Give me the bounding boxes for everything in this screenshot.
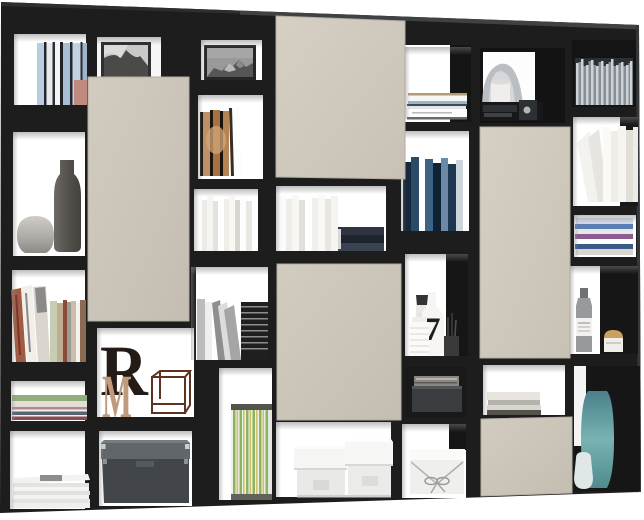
- svg-text:M: M: [102, 363, 132, 431]
